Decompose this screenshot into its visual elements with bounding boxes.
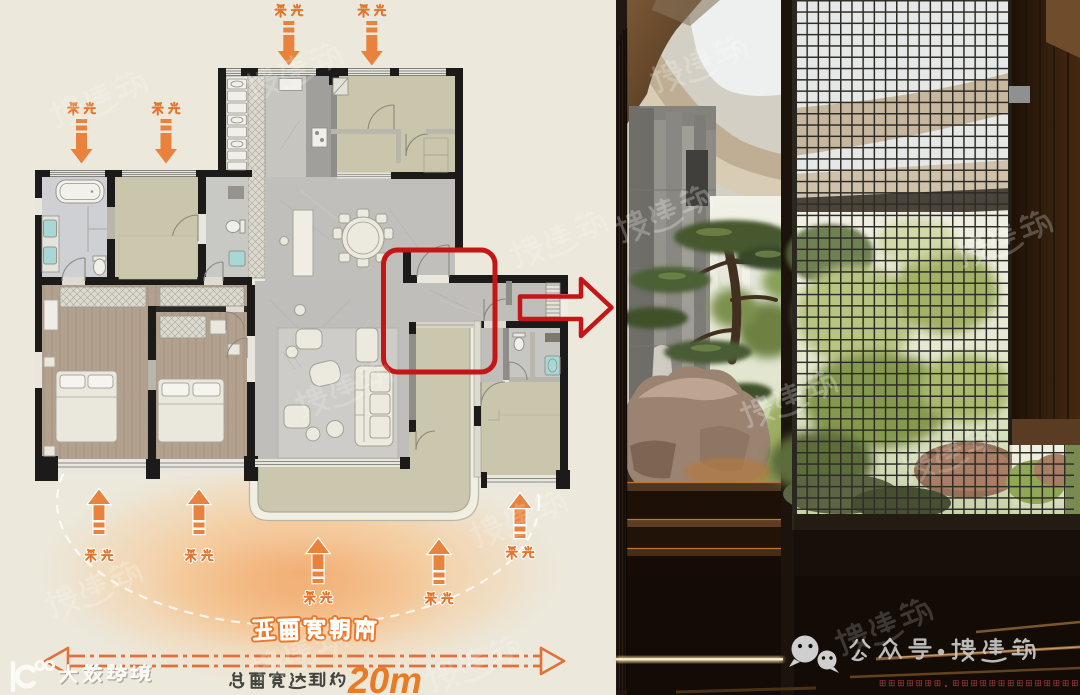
- svg-text:20m: 20m: [347, 660, 422, 695]
